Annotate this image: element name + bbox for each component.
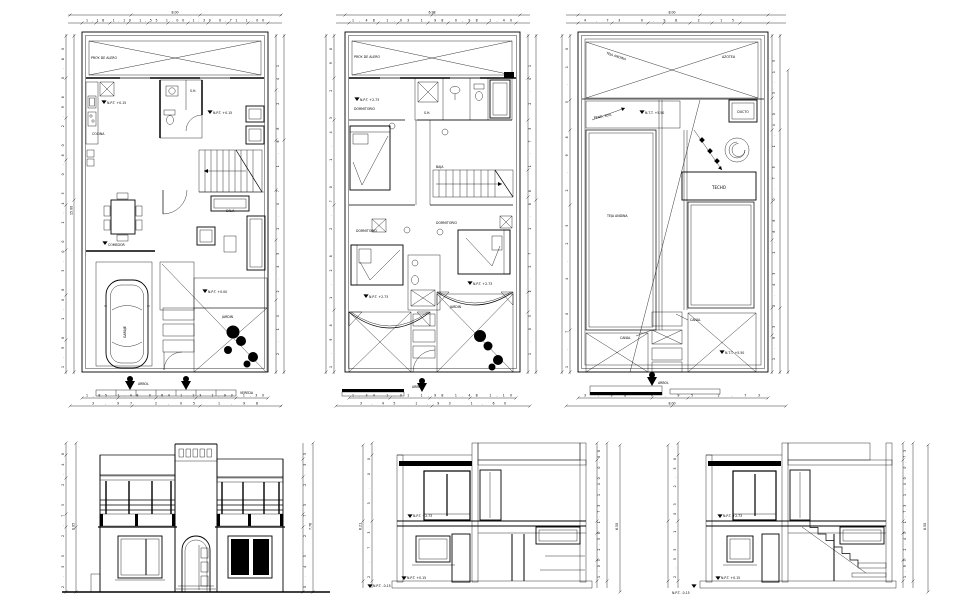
label-tree: ARBOL [138,382,149,386]
kitchen [86,82,114,166]
label-level-kitchen: N.P.T. +0.15 [107,101,126,105]
tiled-roof-left: TEJA ANDINA [586,130,656,330]
plan-roof: TEJA ANDINA AZOTEA PEND. 30% N.T.T. +5.5… [561,11,790,408]
dimension-chain-left: 2.55 1.03 2.58 [667,442,680,589]
label-techo: TECHO [711,185,726,190]
level-marker [467,281,472,285]
label-teja: TEJA ANDINA [605,51,628,62]
svg-text:2.73 3.00: 2.73 3.00 [367,458,371,578]
street-tree [647,377,657,386]
label-eave: PROY. DE ALERO [354,55,380,59]
svg-text:1.85 1.48 0.64 1.23 1.93 1.30: 1.85 1.48 0.64 1.23 1.93 1.30 [86,394,264,398]
upper-window-2 [480,470,501,520]
tiled-roof-right [688,202,754,308]
label-level-ext: N.P.T. -0.15 [373,584,391,588]
sidewalk: ARBOL [590,372,720,395]
duct: DUCTO [729,100,757,122]
label-walk: VEREDA [240,391,254,395]
label-level-floor: N.P.T. +0.15 [407,576,426,580]
bed-2 [351,245,403,285]
garden-2 [437,294,513,372]
downpipe-arrow [694,130,722,170]
label-level-void: N.T.T. +5.50 [725,351,744,355]
label-canal2: CANAL [620,336,631,340]
cad-drawing: PROY. DE ALERO COCINA N.P.T. +0.15 S.H. … [0,0,953,604]
section-a: N.P.T. +2.73 N.P.T. +0.15 N.P.T. -0.15 2… [359,442,622,594]
svg-text:7.76: 7.76 [309,523,313,530]
label-eave: PROY. DE ALERO [91,56,117,60]
level-marker [719,350,724,354]
entry-door [163,190,187,214]
level-marker [691,584,696,588]
svg-text:1.70 4.25 2.98 3.10: 1.70 4.25 2.98 3.10 [565,48,569,368]
dimension-chain-left: 2.73 3.00 6.21 [359,442,374,589]
garden [162,264,267,372]
svg-text:2.55 1.03 2.58: 2.55 1.03 2.58 [673,458,677,578]
bed-3 [458,230,510,274]
label-level-b1: N.P.T. +2.73 [360,98,379,102]
label-pend: PEND. 30% [593,113,611,120]
bed-1 [350,126,390,190]
balcony-left [349,312,430,328]
svg-text:2.14 2.45 1.47 1.68 2.41: 2.14 2.45 1.47 1.68 2.41 [276,65,280,355]
dimension-chain-left: 1.98 1.28 2.70 1.43 2.98 [325,34,336,374]
level-marker [717,514,722,518]
label-tree: ARBOL [412,385,423,389]
label-canal1: CANAL [690,318,701,322]
dimension-chain-right: 2.14 2.45 1.47 1.68 2.41 [275,34,286,374]
svg-text:1.48 1.03 1.98 0.98 1.40: 1.48 1.03 1.98 0.98 1.40 [352,19,512,23]
section-b: N.P.T. +2.73 N.P.T. +0.15 N.P.T. -0.15 2… [667,442,930,596]
left-wing [98,455,177,592]
dimension-chain-left: 1.98 1.08 3.00 1.43 0.80 2.98 0.60 15.00 [61,34,76,374]
street-tree [181,381,191,390]
label-level-b2: N.P.T. +2.73 [369,295,388,299]
svg-text:2.55 2.73 2.48: 2.55 2.73 2.48 [61,453,65,588]
svg-text:15.00: 15.00 [70,206,74,215]
svg-text:1.98 1.08 3.00 1.43 0.80 2.98: 1.98 1.08 3.00 1.43 0.80 2.98 0.60 [61,48,65,368]
label-bed2: DORMITORIO [356,229,377,233]
label-level-ext: N.P.T. -0.15 [672,591,690,595]
level-marker [102,241,107,245]
svg-text:1.93 2.43 1.88 0.75 1.40 3.15: 1.93 2.43 1.88 0.75 1.40 3.15 [772,60,776,360]
walkway [160,262,267,310]
car [104,280,150,368]
dining-set [104,193,142,241]
plan-ground-floor: PROY. DE ALERO COCINA N.P.T. +0.15 S.H. … [61,11,286,408]
dimension-chain-right: 1.93 2.43 1.73 1.40 0.73 6.50 [902,442,930,594]
svg-text:6.50: 6.50 [615,523,619,530]
dimension-chain-bottom: 1.85 1.48 0.64 1.23 1.93 1.30 3.97 2.05 … [69,394,283,408]
label-ducto: DUCTO [737,110,749,114]
label-garage: GARAJE [123,326,127,338]
level-marker [401,576,406,580]
street-tree [125,381,135,390]
svg-text:4.73 0.98 2.15: 4.73 0.98 2.15 [584,19,734,23]
door [452,534,470,582]
svg-text:6.98: 6.98 [428,11,435,15]
label-stair: BAJA [436,165,444,169]
entry-door-arch [176,536,216,592]
label-bath2: S.H. [424,111,430,115]
living-set [197,196,265,270]
dimension-chain-right: 1.03 2.58 1.73 1.40 0.88 6.50 [596,442,622,594]
label-level-hall: N.P.T. +0.15 [213,111,232,115]
svg-text:0.45 2.73 2.55: 0.45 2.73 2.55 [303,453,307,588]
label-level-upper: N.P.T. +2.73 [413,514,432,518]
entry-tower [175,444,217,592]
level-marker [101,100,106,104]
label-kitchen: COCINA [92,132,105,136]
svg-text:6.21: 6.21 [359,523,363,530]
label-bed3: DORMITORIO [436,221,457,225]
dimension-chain-top: 8.00 4.73 0.98 2.15 [566,11,786,25]
label-level-b3: N.P.T. +2.73 [473,282,492,286]
high-window [536,527,580,544]
dimension-chain-left: 1.70 4.25 2.98 3.10 [561,34,572,374]
steps-strip [413,314,435,372]
label-level-upper: N.P.T. +2.73 [723,514,742,518]
right-wing [215,459,285,592]
label-tree: ARBOL [658,381,669,385]
dimension-chain-left: 2.55 2.73 2.48 8.05 [61,442,78,594]
svg-text:8.05: 8.05 [72,523,76,530]
svg-text:1.03 2.58 1.73 1.40 0.88: 1.03 2.58 1.73 1.40 0.88 [597,450,601,578]
label-garden2: JARDIN [449,305,462,309]
void-left [586,333,648,372]
eave-projection [352,41,514,78]
roof-slab: TECHO [682,172,756,200]
high-window [840,527,884,544]
label-garden: JARDIN [221,315,234,319]
window-left [115,536,165,580]
small-bath [408,255,440,310]
stairs-2: BAJA [433,165,513,197]
lower-window [412,536,455,565]
svg-text:8.00: 8.00 [668,402,675,406]
label-level-floor: N.P.T. +0.15 [721,576,740,580]
label-living: SALA [226,209,235,213]
level-marker [715,576,720,580]
level-marker [207,110,212,114]
label-azotea: AZOTEA [722,55,736,59]
dimension-chain-bottom: 1.34 1.01 1.98 1.48 1.10 3.45 1.93 1.60 [335,394,532,408]
void-terrace [349,312,411,372]
upper-window-1 [424,471,470,520]
level-marker [202,289,207,293]
svg-text:8.00: 8.00 [668,11,675,15]
level-marker [363,294,368,298]
svg-text:1.18 1.10 1.55 1.00 1.30 0.71: 1.18 1.10 1.55 1.00 1.30 0.71 1.00 [86,19,264,23]
stair-section [802,521,886,577]
svg-text:6.50: 6.50 [923,523,927,530]
garage: GARAJE [96,262,152,368]
laundry-appliances [246,106,264,144]
svg-text:8.00: 8.00 [171,11,178,15]
upper-window-1 [733,471,776,520]
dimension-chain-bottom: 3.98 0.95 2.73 8.00 [565,394,788,408]
dimension-chain-right: 0.45 2.73 2.55 7.76 [302,442,315,594]
plan-second-floor: PROY. DE ALERO S.H. DORMITORIO N.P.T. +2… [325,11,538,408]
label-level-roof: N.T.T. +5.50 [645,111,664,115]
dimension-chain-top: 6.98 1.48 1.03 1.98 0.98 1.40 [336,11,530,25]
strip-boxes [652,312,682,372]
lower-window [723,536,757,565]
roof-terrace [586,42,758,98]
dimension-chain-right: 1.93 2.43 1.88 0.75 1.40 3.15 [771,34,790,374]
architectural-sheet: PROY. DE ALERO COCINA N.P.T. +0.15 S.H. … [0,0,953,604]
svg-text:1.34 1.01 1.98 1.48 1.10: 1.34 1.01 1.98 1.48 1.10 [352,394,512,398]
void-right: N.T.T. +5.50 [688,313,756,372]
label-dining: COMEDOR [108,243,125,247]
level-marker [407,514,412,518]
level-marker [354,97,359,101]
label-level-walk: N.P.T. +0.00 [208,290,227,294]
dimension-chain-right: 1.03 1.27 1.88 1.75 2.41 [527,34,538,374]
svg-text:1.98 1.28 2.70 1.43 2.98: 1.98 1.28 2.70 1.43 2.98 [329,48,333,368]
window-right [228,536,272,578]
svg-text:1.93 2.43 1.73 1.40 0.73: 1.93 2.43 1.73 1.40 0.73 [903,450,907,578]
level-marker [639,110,644,114]
dimension-chain-top: 8.00 1.18 1.10 1.55 1.00 1.30 0.71 1.00 [68,11,283,25]
slope-strip: PEND. 30% N.T.T. +5.50 [586,101,680,128]
label-teja-left: TEJA ANDINA [606,214,628,218]
vent-spiral [725,138,749,162]
svg-text:3.97 2.05 1.98: 3.97 2.05 1.98 [92,402,258,406]
elevation-front: 2.55 2.73 2.48 8.05 0.45 2.73 2.55 7.76 [61,442,330,594]
upper-window-2 [790,470,810,520]
entry-steps [163,308,194,370]
label-bath: S.H. [190,89,196,93]
label-bed1: DORMITORIO [354,107,375,111]
stairs [199,150,262,192]
door [762,534,779,582]
